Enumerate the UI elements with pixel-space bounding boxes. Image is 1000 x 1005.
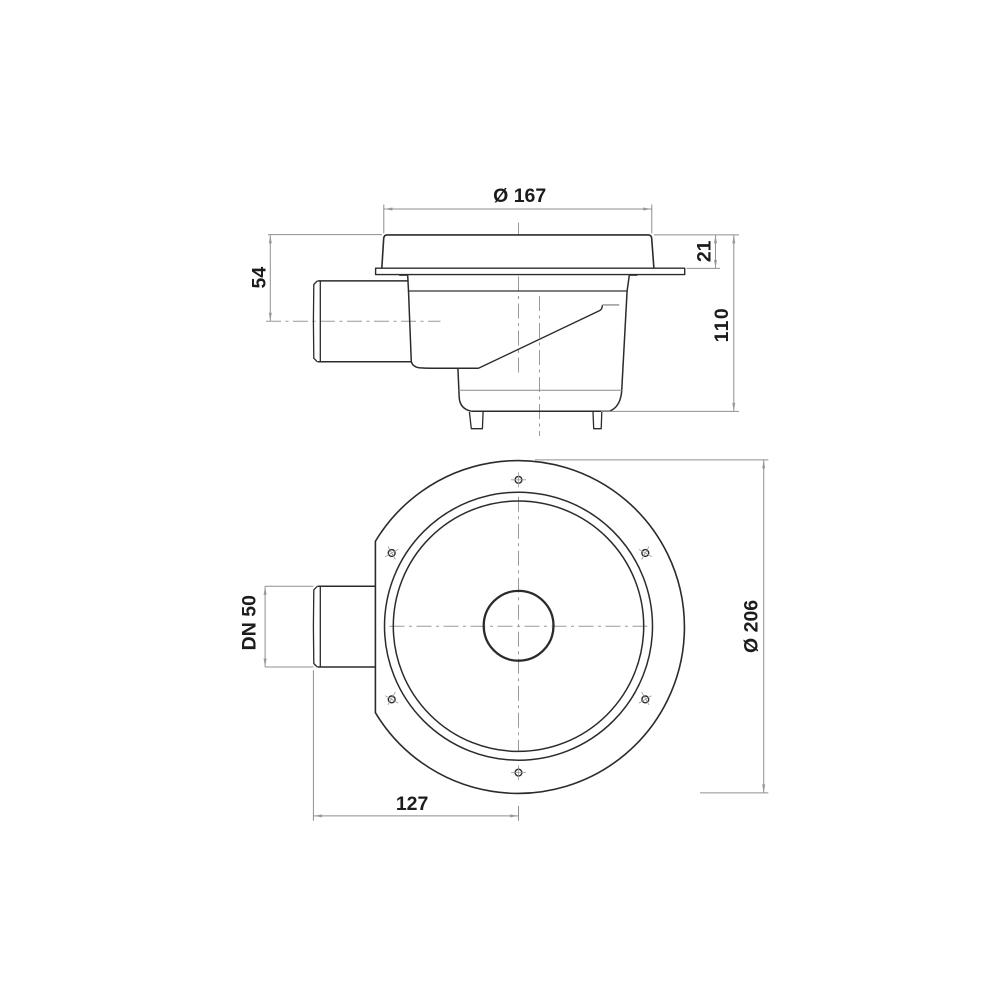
svg-text:110: 110 bbox=[711, 307, 733, 342]
svg-text:54: 54 bbox=[248, 267, 270, 289]
svg-text:Ø 167: Ø 167 bbox=[493, 185, 546, 207]
svg-text:Ø 206: Ø 206 bbox=[740, 600, 762, 653]
svg-text:21: 21 bbox=[694, 240, 716, 262]
svg-text:127: 127 bbox=[396, 793, 429, 815]
svg-text:DN 50: DN 50 bbox=[239, 595, 261, 650]
